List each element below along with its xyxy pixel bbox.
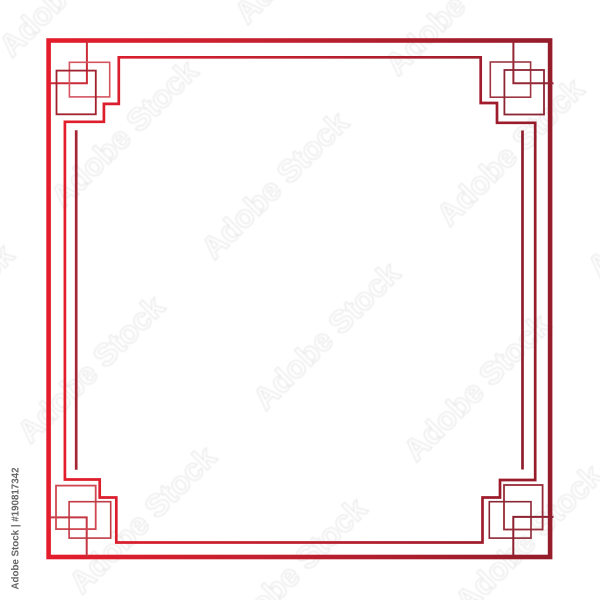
svg-text:Adobe Stock | #190817342: Adobe Stock | #190817342 bbox=[10, 467, 21, 589]
